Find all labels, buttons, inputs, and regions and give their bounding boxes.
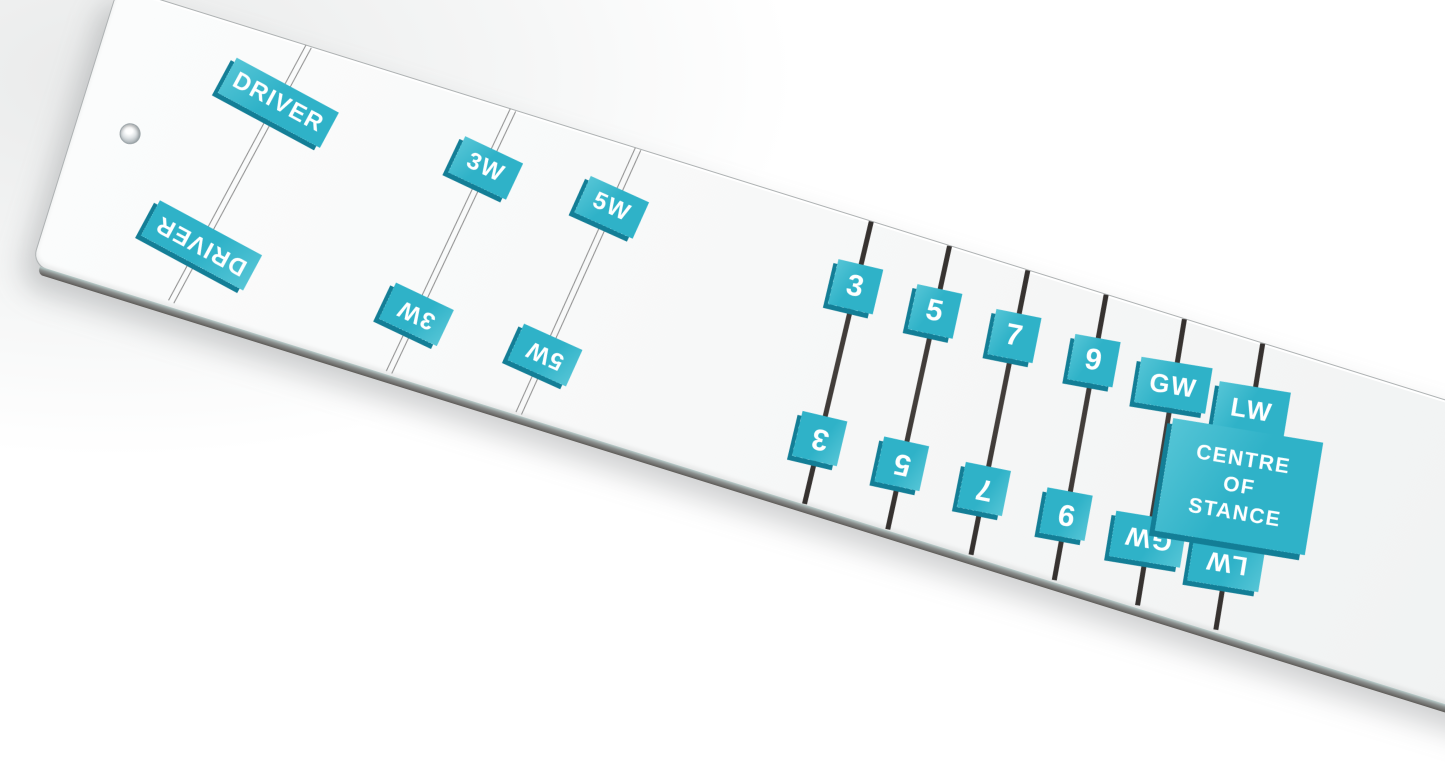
club-label-top-5-iron: 5 [908, 284, 963, 339]
club-label-bottom-7-iron: 7 [957, 462, 1011, 516]
club-marker-3-wood: 3W 3W [389, 110, 513, 372]
club-label-bottom-driver: DRIVER [141, 200, 262, 290]
club-label-bottom-3-iron: 3 [792, 411, 847, 466]
club-marker-7-iron: 7 7 [971, 270, 1028, 554]
club-label-bottom-5-iron: 5 [874, 436, 929, 491]
club-label-top-9-iron: 9 [1067, 334, 1120, 387]
club-line-3-wood [386, 109, 516, 374]
club-marker-9-iron: 9 9 [1054, 295, 1106, 580]
club-line-5-wood [516, 148, 642, 415]
stance-ruler-board: DRIVER DRIVER 3W 3W 5W 5W 3 3 5 5 7 7 9 … [31, 0, 1445, 729]
club-marker-5-wood: 5W 5W [519, 149, 638, 413]
photo-background: DRIVER DRIVER 3W 3W 5W 5W 3 3 5 5 7 7 9 … [0, 0, 1445, 767]
club-label-top-driver: DRIVER [218, 58, 339, 148]
club-marker-3-iron: 3 3 [804, 222, 871, 504]
board-shadow-wrap: DRIVER DRIVER 3W 3W 5W 5W 3 3 5 5 7 7 9 … [31, 0, 1445, 729]
centre-of-stance-block: CENTREOFSTANCE [1155, 418, 1323, 555]
centre-of-stance-text-line: CENTRE [1194, 440, 1292, 479]
club-marker-driver: DRIVER DRIVER [171, 46, 308, 301]
hanging-hole [117, 121, 143, 147]
club-markers-layer: DRIVER DRIVER 3W 3W 5W 5W 3 3 5 5 7 7 9 … [119, 0, 1445, 451]
club-label-top-gap-wedge: GW [1134, 357, 1212, 414]
centre-of-stance-text-line: STANCE [1186, 494, 1282, 533]
club-marker-5-iron: 5 5 [888, 246, 950, 529]
club-label-bottom-5-wood: 5W [508, 324, 583, 387]
club-label-top-3-iron: 3 [828, 259, 883, 314]
club-label-bottom-3-wood: 3W [379, 283, 454, 347]
club-label-bottom-9-iron: 9 [1039, 487, 1092, 540]
club-marker-lob-wedge: LW LW CENTREOFSTANCE [1216, 344, 1263, 630]
club-label-top-7-iron: 7 [987, 309, 1041, 363]
club-label-top-3-wood: 3W [448, 136, 523, 200]
club-label-top-5-wood: 5W [574, 176, 649, 239]
centre-of-stance-text-line: OF [1221, 472, 1257, 501]
